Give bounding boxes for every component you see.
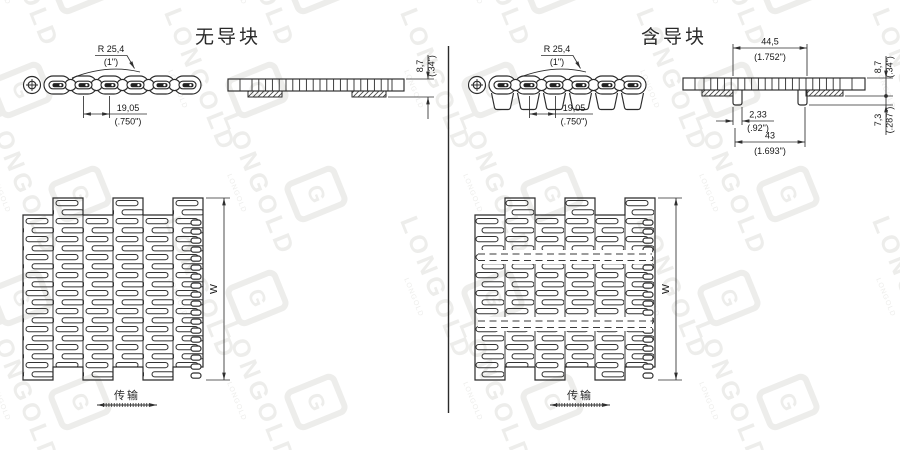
left-width-label: W (208, 284, 220, 294)
left-direction-label: 传输 (114, 388, 140, 402)
left-wear-pad (248, 91, 282, 97)
right-wear-pad (702, 90, 733, 96)
right-radius-mm: R 25,4 (544, 44, 571, 54)
left-pitch-mm: 19,05 (117, 103, 140, 113)
guide-height-mm: 7,3 (873, 114, 883, 127)
belt-technical-drawing: 无导块 R 25,4 (1") 19,05 (.750") (0, 0, 900, 450)
left-side-view-chain (24, 76, 202, 94)
left-pitch-dimension: 19,05 (.750") (84, 96, 148, 127)
guide-outer-width-inch: (1.752") (754, 52, 786, 62)
right-side-view-chain (469, 76, 647, 110)
right-end-view-ticks (695, 78, 852, 90)
guide-rib-left (733, 90, 742, 105)
guide-outer-width-mm: 44,5 (761, 37, 779, 47)
left-radius-inch: (1") (104, 57, 118, 67)
left-thickness-mm: 8,7 (415, 60, 425, 73)
right-radius-callout: R 25,4 (1") (518, 44, 586, 78)
guide-rib-width-mm: 2,33 (749, 110, 767, 120)
drawing-page: LONGOLDLONGOLDGLONGOLDLONGOLDGLONGOLDLON… (0, 0, 900, 450)
right-thickness-mm: 8,7 (873, 61, 883, 74)
left-direction: 传输 (97, 388, 157, 405)
right-plan-view: W (475, 198, 682, 380)
right-title: 含导块 (641, 26, 707, 48)
left-end-view-ticks (240, 79, 392, 91)
right-wear-pad (806, 90, 843, 96)
guide-inner-width-inch: (1.693") (754, 146, 786, 156)
right-width-label: W (660, 284, 672, 294)
left-plan-view: W (23, 198, 230, 380)
right-section: 含导块 R 25,4 (1") 19,05 (.750") (469, 26, 895, 405)
left-wear-pad (352, 91, 386, 97)
left-radius-callout: R 25,4 (1") (72, 44, 140, 78)
left-title: 无导块 (195, 26, 261, 48)
guide-inner-width-mm: 43 (765, 131, 775, 141)
left-radius-mm: R 25,4 (98, 44, 125, 54)
left-pitch-inch: (.750") (115, 117, 142, 127)
right-radius-inch: (1") (550, 57, 564, 67)
left-end-view: 8,7 (.34") (228, 55, 437, 119)
right-pitch-mm: 19,05 (563, 103, 586, 113)
right-pitch-inch: (.750") (561, 117, 588, 127)
right-end-view: 44,5 (1.752") 2,33 (.92") 43 (1.693") 8,… (683, 37, 895, 157)
left-section: 无导块 R 25,4 (1") 19,05 (.750") (23, 26, 437, 405)
right-direction-label: 传输 (567, 388, 593, 402)
right-direction: 传输 (550, 388, 610, 405)
